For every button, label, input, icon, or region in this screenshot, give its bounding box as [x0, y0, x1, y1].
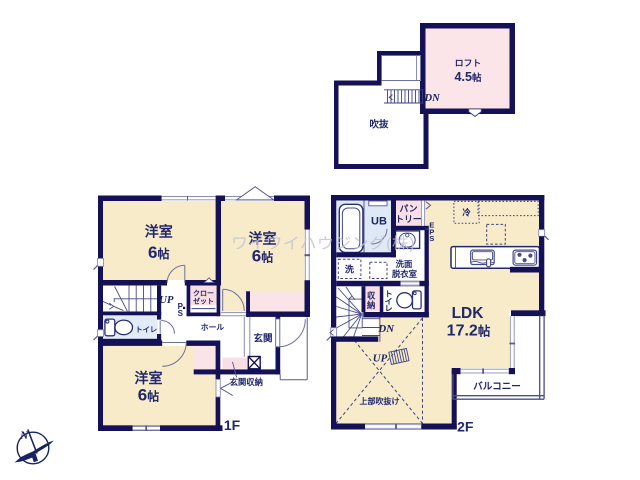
svg-text:脱衣室: 脱衣室: [392, 269, 418, 279]
svg-text:洋室: 洋室: [135, 370, 163, 386]
svg-text:4.5帖: 4.5帖: [454, 70, 482, 84]
svg-text:17.2帖: 17.2帖: [447, 323, 491, 340]
svg-text:吹抜: 吹抜: [369, 119, 389, 131]
svg-text:S: S: [429, 234, 434, 243]
svg-text:ホール: ホール: [201, 323, 225, 332]
svg-text:DN: DN: [377, 323, 395, 335]
svg-text:洋室: 洋室: [145, 224, 173, 240]
svg-text:収: 収: [367, 290, 376, 300]
svg-text:1F: 1F: [224, 417, 241, 433]
svg-text:S: S: [178, 309, 184, 318]
svg-text:2F: 2F: [457, 418, 474, 434]
svg-text:UP: UP: [159, 294, 174, 306]
svg-text:玄関: 玄関: [253, 333, 272, 345]
svg-text:洗: 洗: [345, 264, 354, 275]
svg-text:玄関収納: 玄関収納: [230, 377, 263, 387]
svg-text:UB: UB: [371, 216, 387, 228]
svg-text:トリー: トリー: [395, 214, 422, 224]
svg-text:上部吹抜け: 上部吹抜け: [360, 396, 400, 406]
svg-text:DN: DN: [424, 93, 441, 104]
svg-text:N: N: [19, 430, 29, 442]
svg-text:ワイワイハウジング(株): ワイワイハウジング(株): [231, 235, 415, 253]
svg-text:レ: レ: [385, 304, 393, 313]
svg-text:ロフト: ロフト: [455, 58, 481, 68]
svg-text:バルコニー: バルコニー: [473, 381, 521, 393]
svg-text:クロー: クロー: [193, 288, 214, 297]
svg-text:UP: UP: [373, 353, 388, 365]
svg-text:納: 納: [367, 300, 375, 310]
svg-text:ゼット: ゼット: [193, 297, 214, 306]
svg-text:LDK: LDK: [452, 305, 485, 322]
svg-text:冷: 冷: [462, 208, 471, 218]
svg-text:パン: パン: [399, 203, 417, 214]
svg-text:洗面: 洗面: [396, 259, 413, 269]
svg-text:トイレ: トイレ: [135, 325, 157, 334]
